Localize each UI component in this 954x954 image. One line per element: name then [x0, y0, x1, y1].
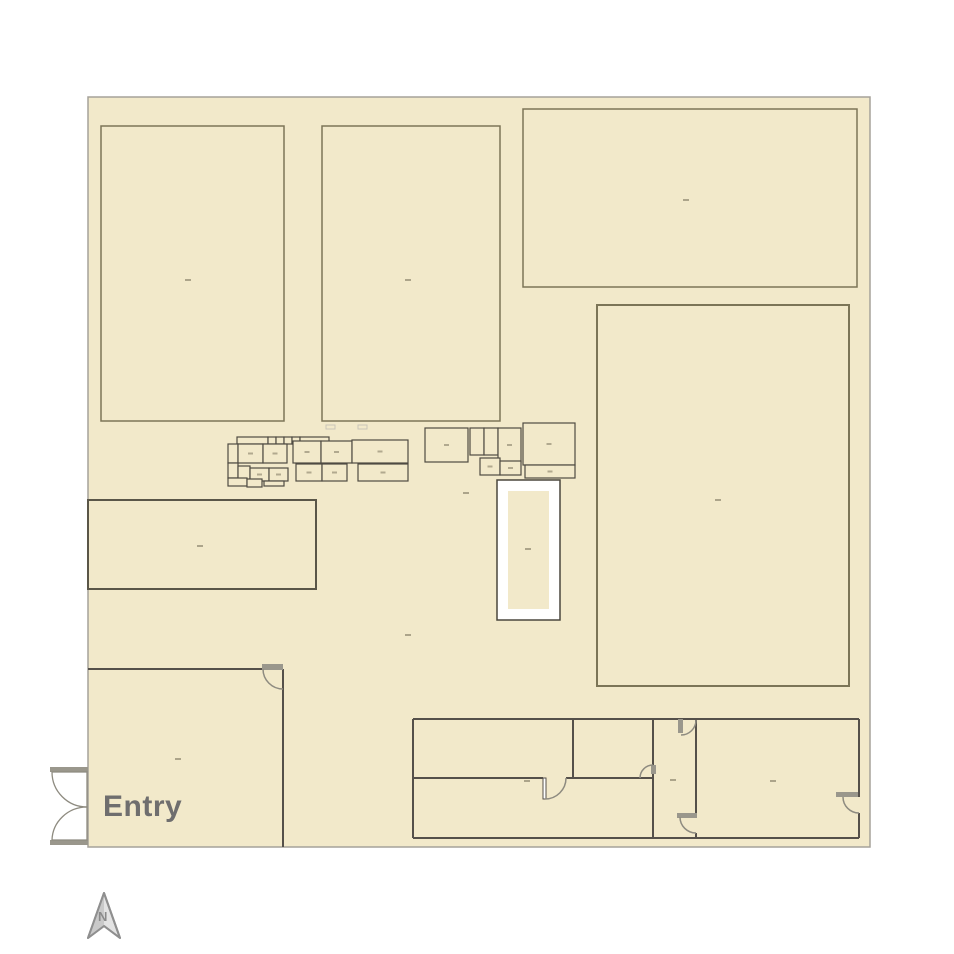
north-arrow-icon: N: [88, 893, 120, 938]
cluster-box: [484, 428, 498, 455]
cluster-box-label: [378, 451, 383, 453]
door-header: [651, 765, 656, 774]
cluster-box: [228, 478, 247, 486]
tiny-label: [525, 548, 531, 550]
entry-double-door-leaf: [52, 772, 87, 807]
floorplan-drawing: Entry N: [0, 0, 954, 954]
cluster-box: [237, 437, 268, 444]
cluster-box-label: [488, 466, 493, 468]
tiny-label: [175, 758, 181, 760]
door-leaf: [543, 778, 546, 799]
cluster-box: [276, 437, 284, 444]
door-header: [262, 664, 283, 670]
plan-area: [88, 97, 870, 847]
floorplan-page: Entry N: [0, 0, 954, 954]
door-header: [836, 792, 858, 797]
cluster-box-label: [507, 444, 512, 446]
tiny-label: [185, 279, 191, 281]
plan-boundary: [88, 97, 870, 847]
tiny-label: [683, 199, 689, 201]
cluster-box-label: [305, 451, 310, 453]
cluster-box: [284, 437, 292, 444]
tiny-label: [524, 780, 530, 782]
tiny-label: [715, 499, 721, 501]
cluster-box-label: [257, 474, 262, 476]
cluster-box-label: [381, 472, 386, 474]
cluster-box-label: [547, 443, 552, 445]
tiny-label: [405, 634, 411, 636]
tiny-label: [670, 779, 676, 781]
door-header: [50, 840, 88, 845]
cluster-box-label: [508, 467, 513, 469]
cluster-box: [470, 428, 484, 455]
cluster-box-label: [444, 444, 449, 446]
cluster-box-label: [273, 453, 278, 455]
cluster-box: [247, 479, 262, 487]
cluster-box-label: [548, 471, 553, 473]
cluster-box-label: [276, 474, 281, 476]
north-letter: N: [98, 909, 107, 924]
tiny-label: [197, 545, 203, 547]
cluster-box-label: [334, 451, 339, 453]
cluster-box-label: [307, 472, 312, 474]
tiny-label: [770, 780, 776, 782]
tiny-label: [463, 492, 469, 494]
door-header: [50, 767, 88, 772]
entry-double-door-leaf: [52, 807, 87, 840]
door-header: [678, 719, 683, 733]
cluster-box-label: [248, 453, 253, 455]
cluster-box-label: [332, 472, 337, 474]
cluster-box: [268, 437, 276, 444]
cluster-box: [264, 481, 284, 486]
tiny-label: [405, 279, 411, 281]
entry-label: Entry: [103, 790, 182, 823]
cluster-box: [228, 444, 238, 463]
cluster-box: [228, 463, 238, 478]
